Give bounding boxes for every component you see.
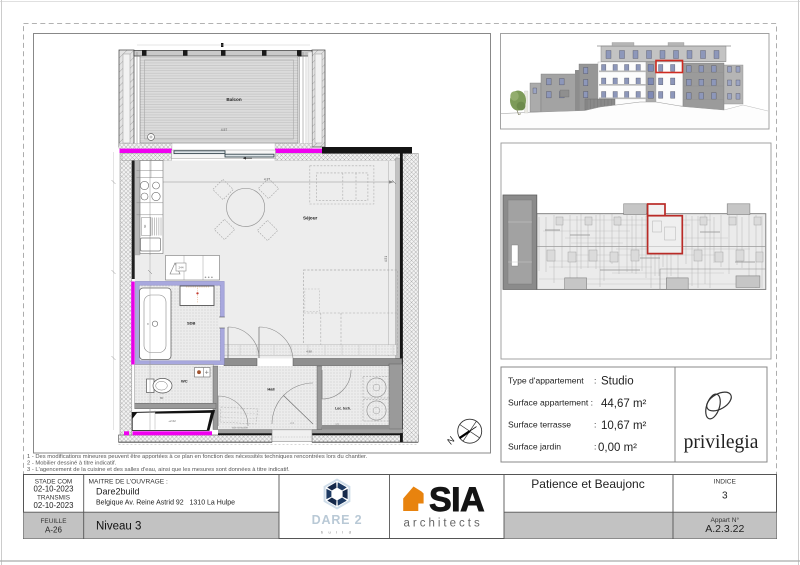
svg-text:60: 60 (143, 224, 147, 228)
svg-text:A-26: A-26 (45, 526, 62, 535)
svg-text:WC: WC (181, 379, 188, 384)
svg-text:Séjour: Séjour (303, 216, 318, 221)
svg-text:INDICE: INDICE (714, 479, 737, 486)
svg-text:SDB: SDB (187, 321, 196, 326)
svg-text::: : (594, 442, 596, 452)
svg-text:3 - L'agencement de la cuisine: 3 - L'agencement de la cuisine et des sa… (27, 467, 290, 473)
svg-text:2.3: 2.3 (290, 421, 294, 425)
svg-text:1.9: 1.9 (335, 422, 339, 426)
svg-text:A.2.3.22: A.2.3.22 (705, 523, 744, 535)
svg-text:b u i l d: b u i l d (321, 531, 353, 535)
svg-text:Dare2build: Dare2build (96, 487, 140, 497)
svg-text:Patience et Beaujonc: Patience et Beaujonc (531, 477, 644, 491)
svg-text::: : (594, 376, 596, 386)
svg-text:44,67 m²: 44,67 m² (601, 398, 647, 410)
svg-text:80: 80 (160, 396, 164, 400)
svg-text:4.88: 4.88 (306, 350, 312, 354)
svg-text:DARE 2: DARE 2 (312, 513, 363, 527)
svg-text:x: x (147, 322, 149, 326)
svg-text:4.57: 4.57 (221, 128, 228, 132)
svg-text:3: 3 (722, 491, 728, 502)
svg-text:02-10-2023: 02-10-2023 (34, 501, 74, 510)
svg-text:Loc. tech.: Loc. tech. (335, 407, 351, 411)
svg-text:Type d'appartement: Type d'appartement (508, 376, 584, 386)
svg-text:4.51: 4.51 (384, 256, 388, 262)
svg-text::: : (594, 420, 596, 430)
svg-text:vide s/escalier: vide s/escalier (232, 426, 249, 430)
svg-text:02-10-2023: 02-10-2023 (34, 485, 74, 494)
svg-text:1 - Des modifications mineures: 1 - Des modifications mineures peuvent ê… (27, 454, 368, 460)
svg-text:MAITRE DE L'OUVRAGE :: MAITRE DE L'OUVRAGE : (89, 479, 168, 486)
svg-text:Studio: Studio (601, 376, 634, 388)
svg-text:Surface terrasse: Surface terrasse (508, 420, 571, 430)
svg-text:+2.62: +2.62 (168, 419, 176, 423)
svg-text:Hall: Hall (267, 387, 274, 392)
svg-text:SIA: SIA (429, 481, 484, 519)
svg-text:Balcon: Balcon (226, 97, 242, 102)
svg-text:244: 244 (178, 266, 183, 270)
svg-text:0,00 m²: 0,00 m² (598, 442, 637, 454)
svg-text:Surface jardin: Surface jardin (508, 442, 561, 452)
svg-text:Belgique Av. Reine Astrid 92: Belgique Av. Reine Astrid 92 1310 La Hul… (96, 500, 235, 507)
svg-text:2 - Mobilier dessiné à titre i: 2 - Mobilier dessiné à titre indicatif. (27, 461, 117, 467)
svg-text:privilegia: privilegia (684, 432, 759, 453)
svg-text:Surface appartement :: Surface appartement : (508, 398, 593, 408)
svg-text:FEUILLE: FEUILLE (41, 518, 67, 525)
svg-text:architects: architects (404, 518, 483, 530)
svg-text:Niveau 3: Niveau 3 (96, 521, 141, 533)
svg-text:10,67 m²: 10,67 m² (601, 420, 647, 432)
